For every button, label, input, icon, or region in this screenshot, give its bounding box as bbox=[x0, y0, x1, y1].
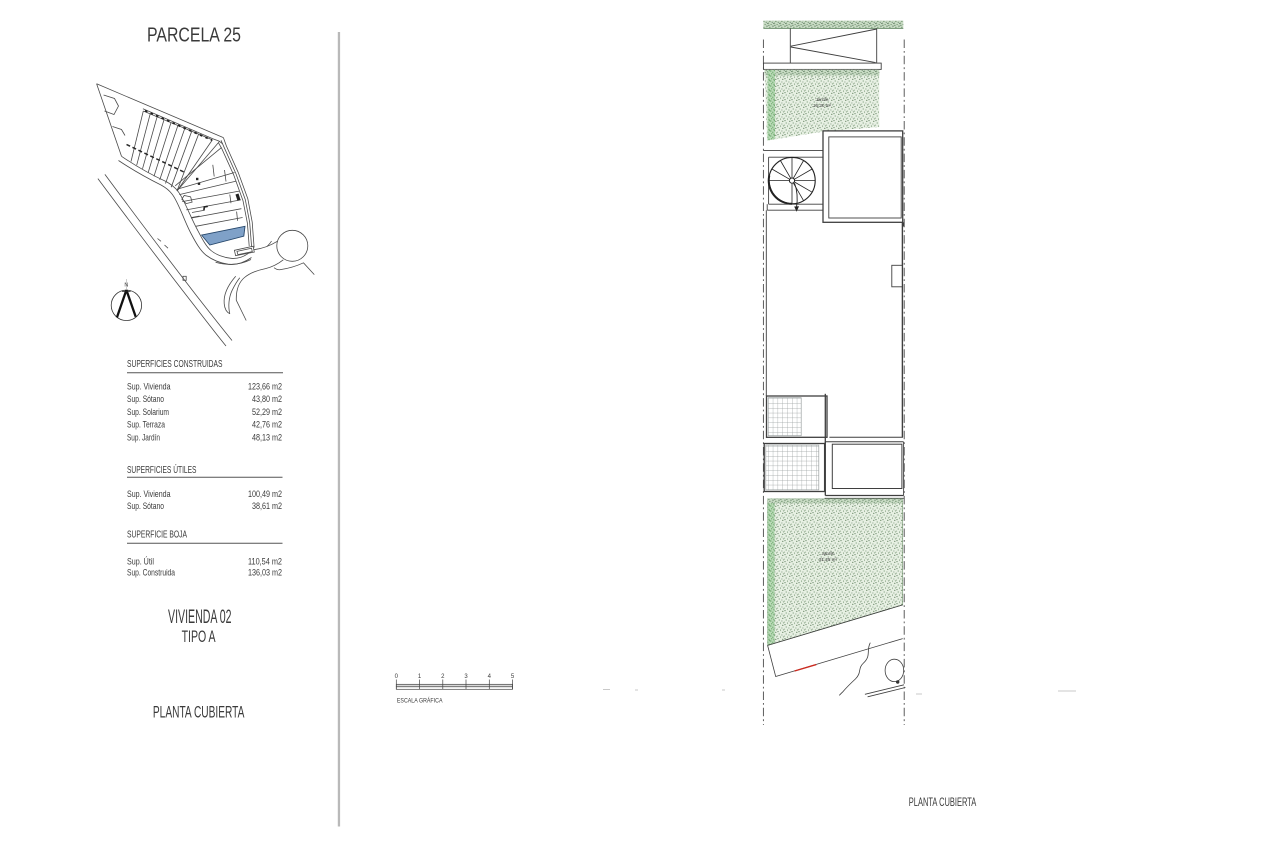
svg-text:SUPERFICIES CONSTRUIDAS: SUPERFICIES CONSTRUIDAS bbox=[127, 359, 223, 370]
svg-text:Sup. Sótano: Sup. Sótano bbox=[127, 393, 164, 404]
svg-text:Jardín: Jardín bbox=[822, 551, 835, 556]
svg-text:PARCELA 25: PARCELA 25 bbox=[147, 24, 241, 46]
svg-text:SUPERFICIES ÚTILES: SUPERFICIES ÚTILES bbox=[127, 463, 197, 476]
svg-text:Sup. Vivienda: Sup. Vivienda bbox=[127, 381, 171, 392]
svg-text:110,54 m2: 110,54 m2 bbox=[248, 556, 282, 567]
svg-text:38,61 m2: 38,61 m2 bbox=[252, 500, 282, 511]
svg-text:136,03 m2: 136,03 m2 bbox=[248, 567, 282, 578]
svg-text:123,66 m2: 123,66 m2 bbox=[248, 381, 282, 392]
svg-text:SUPERFICIE BOJA: SUPERFICIE BOJA bbox=[127, 529, 187, 540]
svg-text:Sup. Útil: Sup. Útil bbox=[127, 556, 154, 567]
svg-text:N: N bbox=[124, 283, 128, 289]
svg-text:Sup. Terraza: Sup. Terraza bbox=[127, 419, 166, 430]
svg-text:Sup. Solarium: Sup. Solarium bbox=[127, 406, 169, 417]
svg-text:PLANTA CUBIERTA: PLANTA CUBIERTA bbox=[153, 702, 245, 721]
svg-text:Sup. Vivienda: Sup. Vivienda bbox=[127, 488, 171, 499]
svg-text:0: 0 bbox=[395, 674, 399, 680]
svg-text:Sup. Jardín: Sup. Jardín bbox=[127, 431, 160, 442]
svg-text:4: 4 bbox=[488, 674, 492, 680]
svg-text:TIPO A: TIPO A bbox=[182, 627, 216, 646]
svg-text:52,29 m2: 52,29 m2 bbox=[252, 406, 282, 417]
svg-text:Sup. Sótano: Sup. Sótano bbox=[127, 500, 164, 511]
svg-text:3: 3 bbox=[464, 674, 468, 680]
svg-text:31,25 m²: 31,25 m² bbox=[819, 557, 837, 562]
svg-text:ESCALA GRÁFICA: ESCALA GRÁFICA bbox=[397, 695, 443, 704]
svg-text:Jardín: Jardín bbox=[816, 97, 829, 102]
svg-text:2: 2 bbox=[441, 674, 445, 680]
svg-text:43,80 m2: 43,80 m2 bbox=[252, 393, 282, 404]
svg-text:1: 1 bbox=[418, 674, 422, 680]
svg-text:PLANTA CUBIERTA: PLANTA CUBIERTA bbox=[909, 795, 977, 809]
svg-text:16,30 m²: 16,30 m² bbox=[813, 103, 831, 108]
svg-text:100,49 m2: 100,49 m2 bbox=[248, 488, 282, 499]
svg-text:VIVIENDA 02: VIVIENDA 02 bbox=[168, 607, 232, 628]
svg-text:48,13 m2: 48,13 m2 bbox=[252, 431, 282, 442]
svg-text:5: 5 bbox=[511, 674, 515, 680]
svg-text:Sup. Construida: Sup. Construida bbox=[127, 567, 176, 578]
svg-text:42,76 m2: 42,76 m2 bbox=[252, 419, 282, 430]
